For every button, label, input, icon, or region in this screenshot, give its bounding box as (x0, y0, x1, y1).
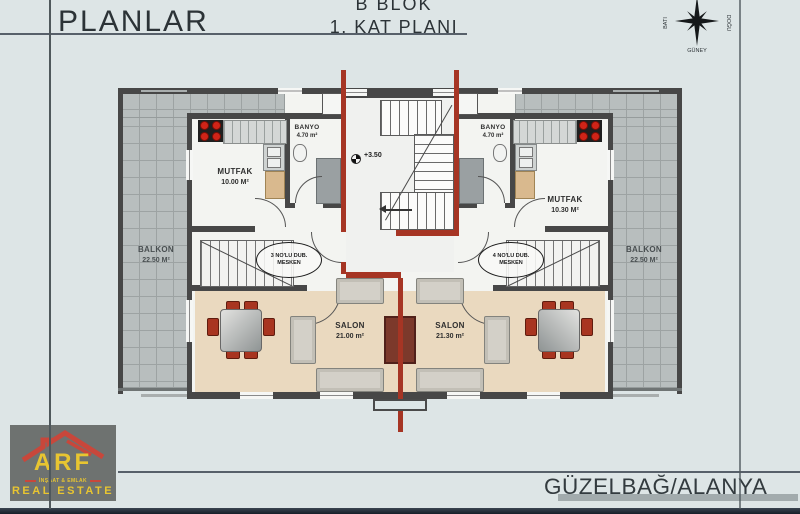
level-marker: +3.50 (364, 152, 382, 159)
wall-exterior-side (677, 88, 682, 394)
kitchen-label: MUTFAK 10.30 M² (535, 194, 595, 217)
wall-kitchen-top (190, 113, 290, 119)
kitchen-label: MUTFAK 10.00 M² (205, 166, 265, 189)
stair-direction-line (386, 209, 412, 211)
dining-chair (581, 318, 593, 336)
red-wall-line-left (341, 70, 346, 232)
burner-icon (591, 132, 600, 141)
couch (416, 368, 484, 392)
compass-rose-icon: BATI DOĞU GÜNEY (658, 0, 736, 56)
wall-kitchen-top (510, 113, 610, 119)
balcony-door (607, 300, 614, 342)
arf-logo: ARF İNŞAAT & EMLAK REAL ESTATE (10, 425, 116, 501)
bath-label: BANYO 4.70 m² (471, 123, 515, 139)
wall-exterior-side (118, 88, 123, 394)
stove-icon (198, 120, 223, 142)
floor-plan: MUTFAK 10.00 M² BANYO 4.70 m² SALON 21.0… (115, 70, 685, 432)
burner-icon (200, 121, 209, 130)
sofa (484, 316, 510, 364)
burner-icon (579, 132, 588, 141)
dining-table (220, 309, 262, 352)
toilet-icon (293, 144, 307, 162)
kitchen-sink-icon (263, 144, 285, 171)
brand-tagline-row: İNŞAAT & EMLAK (10, 478, 116, 484)
balcony-parapet (118, 388, 190, 391)
dining-chair (207, 318, 219, 336)
balcony-floor (610, 92, 678, 388)
burner-icon (212, 132, 221, 141)
kitchen-sink-icon (515, 144, 537, 171)
brand-subtitle: REAL ESTATE (10, 485, 116, 497)
fridge-icon (515, 171, 535, 199)
bottom-bar (0, 508, 800, 514)
burner-icon (212, 121, 221, 130)
brand-tagline: İNŞAAT & EMLAK (39, 478, 87, 484)
balcony-door (186, 300, 193, 342)
stove-icon (577, 120, 602, 142)
unit-tag-oval: 3 NO'LU DUB. MESKEN (256, 242, 322, 278)
dining-chair (263, 318, 275, 336)
wall-exterior-bottom (187, 392, 400, 399)
wall-annotation-mark (141, 394, 187, 397)
wall-annotation-mark (613, 90, 659, 93)
stair-flight-upper (380, 100, 442, 136)
window-stairwell-left (343, 89, 367, 96)
sofa (290, 316, 316, 364)
compass-south-label: GÜNEY (687, 47, 707, 54)
living-label: SALON 21.00 m² (320, 320, 380, 343)
window-kitchen (278, 88, 302, 94)
dining-chair (525, 318, 537, 336)
tagline-dash (90, 480, 101, 482)
armchair (416, 278, 464, 304)
stair-flight-mid (414, 134, 454, 194)
bath-label: BANYO 4.70 m² (285, 123, 329, 139)
window-kitchen-balcony (186, 150, 193, 180)
burner-icon (200, 132, 209, 141)
title-rule (0, 33, 467, 35)
red-wall-line-horizontal (346, 272, 401, 278)
sheet-frame-line-right (739, 0, 741, 509)
burner-icon (591, 121, 600, 130)
wall-exterior-bottom (400, 392, 613, 399)
stair-direction-arrow (379, 205, 386, 213)
red-wall-line-right (454, 70, 459, 230)
balcony-label: BALKON 22.50 M² (614, 244, 674, 267)
balcony-parapet (610, 388, 682, 391)
living-label: SALON 21.30 m² (420, 320, 480, 343)
dining-table (538, 309, 580, 352)
sheet-frame-line-left (49, 0, 51, 509)
unit-tag-oval: 4 NO'LU DUB. MESKEN (478, 242, 544, 278)
plan-sheet: PLANLAR B BLOK 1. KAT PLANI BATI DOĞU GÜ… (0, 0, 800, 514)
window-living-2 (320, 392, 353, 399)
toilet-icon (493, 144, 507, 162)
entrance-step (373, 399, 427, 411)
window-living-1 (240, 392, 273, 399)
window-kitchen-balcony (607, 150, 614, 180)
wall-bath-bottom (505, 203, 515, 208)
compass-west-label: BATI (663, 17, 669, 29)
footer-rule (118, 471, 800, 473)
fridge-icon (265, 171, 285, 199)
wall-kitchen-bottom (190, 226, 255, 232)
window-kitchen (498, 88, 522, 94)
wall-bath-bottom (285, 203, 295, 208)
balcony-floor (122, 92, 190, 388)
duct-shaft (322, 93, 343, 115)
wall-annotation-mark (613, 394, 659, 397)
red-wall-line-horizontal (396, 230, 459, 236)
level-symbol-icon (351, 154, 361, 164)
kitchen-counter (223, 120, 287, 144)
couch (316, 368, 384, 392)
balcony-label: BALKON 22.50 M² (126, 244, 186, 267)
window-living-2 (447, 392, 480, 399)
block-label: B BLOK (288, 0, 500, 16)
window-living-1 (527, 392, 560, 399)
burner-icon (579, 121, 588, 130)
armchair (336, 278, 384, 304)
floor-label: 1. KAT PLANI (288, 16, 500, 39)
compass-east-label: DOĞU (725, 15, 732, 32)
tagline-dash (25, 480, 36, 482)
kitchen-counter (513, 120, 577, 144)
wall-annotation-mark (141, 90, 187, 93)
brand-name: ARF (10, 449, 116, 477)
duct-shaft (457, 93, 478, 115)
wall-kitchen-bottom (545, 226, 610, 232)
footer-shadow-strip (558, 494, 798, 501)
